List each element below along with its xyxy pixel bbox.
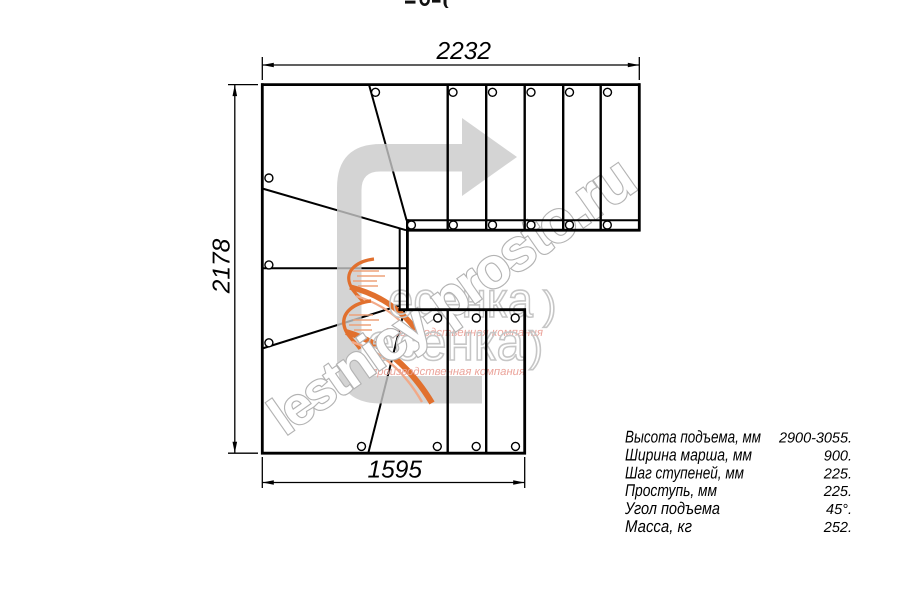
svg-text:2178: 2178 [209,238,236,294]
svg-text:Масса, кг: Масса, кг [625,517,692,536]
svg-text:900.: 900. [824,448,852,464]
svg-text:Ширина марша, мм: Ширина марша, мм [625,445,752,464]
svg-text:Шаг ступеней, мм: Шаг ступеней, мм [625,463,744,482]
svg-text:225.: 225. [823,466,852,482]
svg-text:2900-3055.: 2900-3055. [778,431,852,447]
svg-text:Проступь, мм: Проступь, мм [625,481,717,500]
svg-text:45°.: 45°. [826,502,852,518]
svg-text:): ) [529,323,543,370]
svg-text:Угол подъема: Угол подъема [624,499,720,518]
svg-text:2232: 2232 [435,38,491,65]
svg-text:): ) [543,284,556,328]
svg-text:225.: 225. [823,484,852,500]
svg-text:Высота подъема, мм: Высота подъема, мм [625,428,761,447]
svg-text:1595: 1595 [367,456,422,483]
svg-text:252.: 252. [823,520,852,536]
